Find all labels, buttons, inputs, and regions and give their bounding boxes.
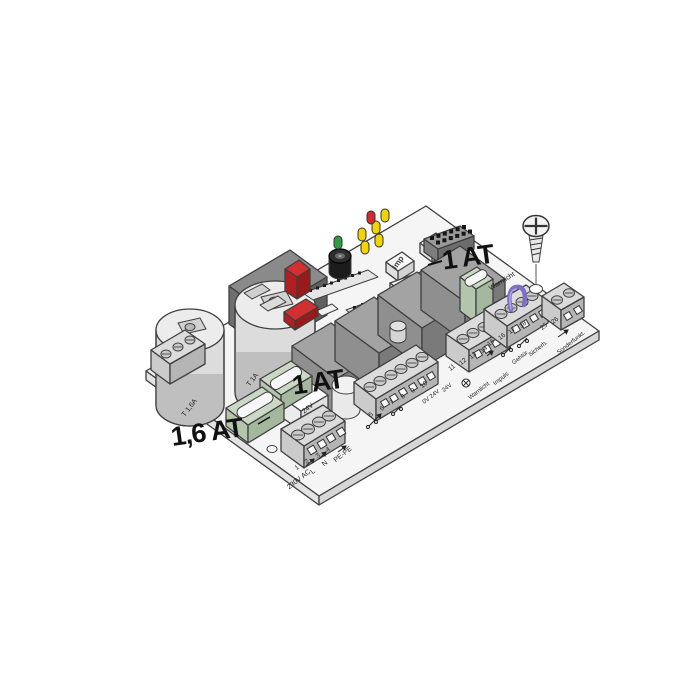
status-led-green (334, 236, 342, 249)
fuse-holder-red-tall (285, 260, 310, 299)
board-hole (267, 446, 277, 453)
status-led-yellow (358, 228, 366, 241)
status-led-yellow (375, 234, 383, 247)
illustration-canvas: Imp Geh (0, 0, 700, 700)
status-led-yellow (381, 209, 389, 222)
screw-hole (530, 285, 543, 294)
status-led-yellow (361, 241, 369, 254)
control-board-illustration: Imp Geh (0, 0, 700, 700)
buzzer (329, 249, 351, 279)
lamp-symbol (462, 379, 470, 387)
status-led-red (367, 211, 375, 224)
